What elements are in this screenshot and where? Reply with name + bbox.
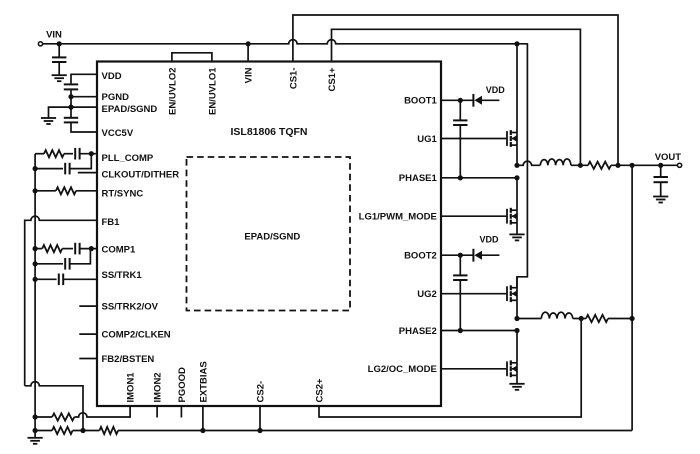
svg-text:LG2/OC_MODE: LG2/OC_MODE <box>368 364 437 375</box>
svg-text:COMP1: COMP1 <box>102 245 137 256</box>
svg-text:LG1/PWM_MODE: LG1/PWM_MODE <box>359 212 437 223</box>
svg-text:RT/SYNC: RT/SYNC <box>102 188 144 199</box>
svg-text:PHASE2: PHASE2 <box>399 326 437 337</box>
svg-text:VDD: VDD <box>486 85 506 95</box>
svg-text:EN/UVLO1: EN/UVLO1 <box>207 67 218 115</box>
svg-text:CS2+: CS2+ <box>314 378 325 402</box>
svg-text:COMP2/CLKEN: COMP2/CLKEN <box>102 330 171 341</box>
svg-text:SS/TRK2/OV: SS/TRK2/OV <box>102 302 159 313</box>
svg-text:CS2-: CS2- <box>255 381 266 403</box>
svg-text:SS/TRK1: SS/TRK1 <box>102 270 143 281</box>
svg-text:VIN: VIN <box>46 30 62 41</box>
svg-text:EXTBIAS: EXTBIAS <box>198 361 209 402</box>
svg-text:ISL81806 TQFN: ISL81806 TQFN <box>230 126 307 138</box>
svg-text:EPAD/SGND: EPAD/SGND <box>244 232 300 243</box>
svg-text:FB2/BSTEN: FB2/BSTEN <box>102 354 155 365</box>
svg-text:PGOOD: PGOOD <box>177 367 188 403</box>
svg-text:CS1+: CS1+ <box>327 67 338 91</box>
svg-text:FB1: FB1 <box>102 217 121 228</box>
svg-text:EN/UVLO2: EN/UVLO2 <box>167 68 178 116</box>
svg-text:UG1: UG1 <box>417 134 437 145</box>
svg-text:PGND: PGND <box>102 92 130 103</box>
svg-text:VCC5V: VCC5V <box>102 128 134 139</box>
svg-text:VDD: VDD <box>102 71 122 82</box>
svg-text:UG2: UG2 <box>417 289 437 300</box>
svg-text:BOOT1: BOOT1 <box>404 96 437 107</box>
svg-text:EPAD/SGND: EPAD/SGND <box>102 104 158 115</box>
svg-text:BOOT2: BOOT2 <box>404 251 437 262</box>
svg-text:VDD: VDD <box>479 234 499 244</box>
svg-text:VOUT: VOUT <box>655 152 682 163</box>
svg-text:CLKOUT/DITHER: CLKOUT/DITHER <box>102 170 180 181</box>
svg-text:IMON2: IMON2 <box>153 372 164 402</box>
svg-text:PLL_COMP: PLL_COMP <box>102 153 154 164</box>
svg-text:VIN: VIN <box>244 67 255 83</box>
svg-text:PHASE1: PHASE1 <box>399 173 438 184</box>
svg-text:IMON1: IMON1 <box>126 372 137 403</box>
svg-text:CS1-: CS1- <box>288 68 299 90</box>
